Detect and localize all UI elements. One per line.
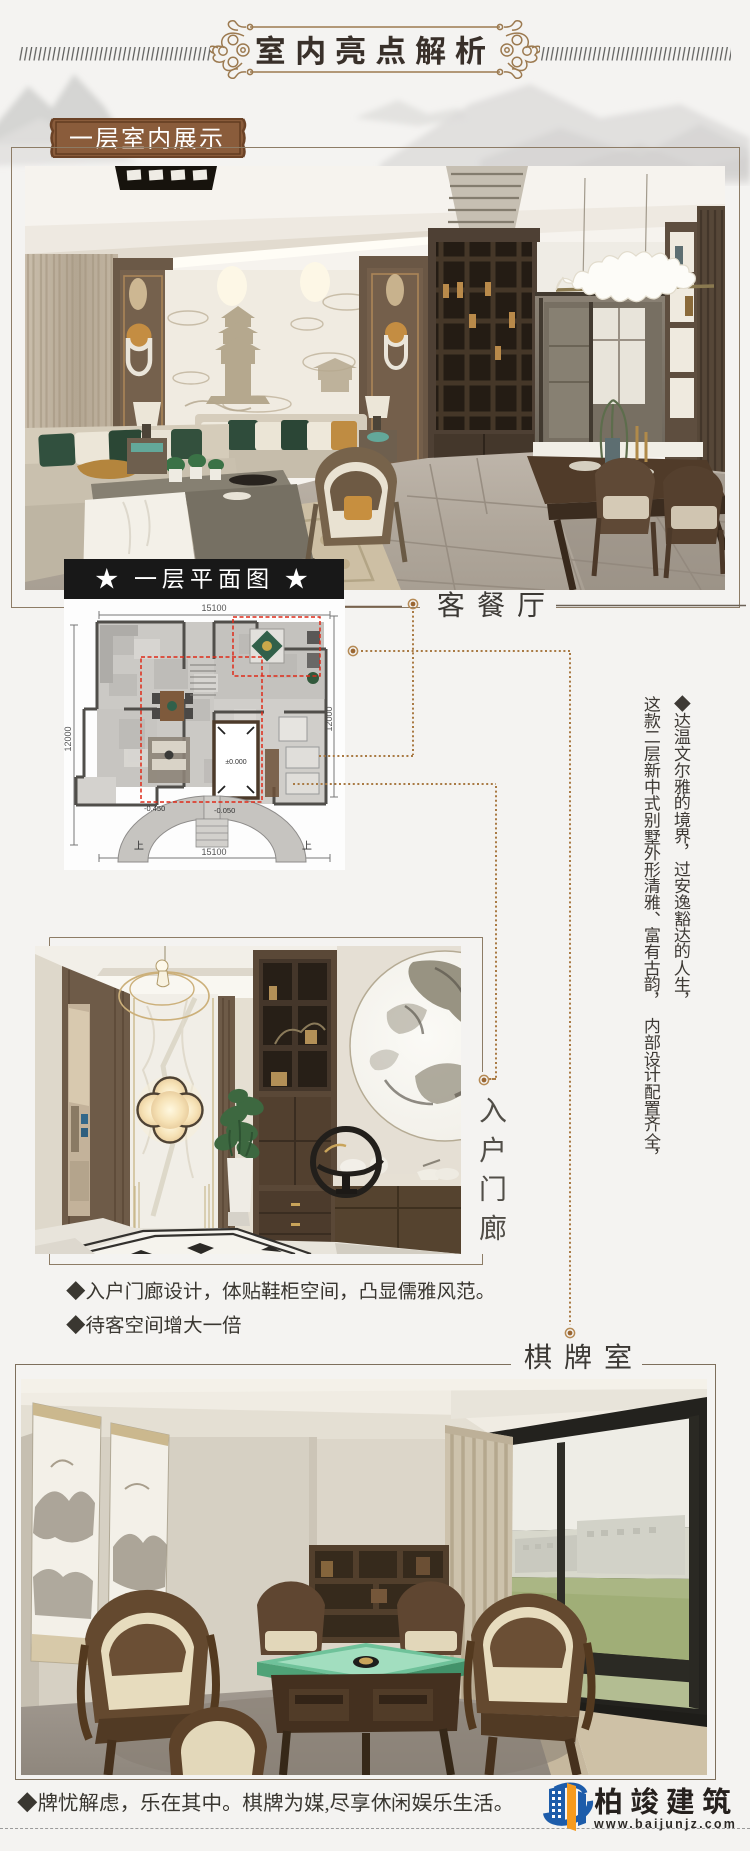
svg-text:www.baijunjz.com: www.baijunjz.com [593, 1817, 737, 1831]
svg-text:柏竣建筑: 柏竣建筑 [594, 1779, 738, 1821]
